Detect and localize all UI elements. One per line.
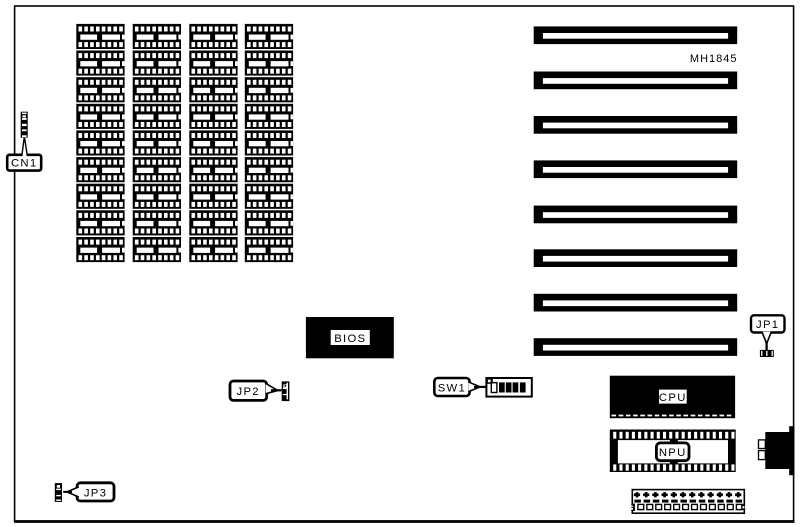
svg-text:JP3: JP3 xyxy=(84,487,107,499)
svg-text:SW1: SW1 xyxy=(438,382,466,394)
svg-text:NPU: NPU xyxy=(659,447,687,459)
svg-text:BIOS: BIOS xyxy=(334,333,366,345)
svg-text:JP1: JP1 xyxy=(756,319,779,331)
svg-text:CPU: CPU xyxy=(659,392,687,404)
svg-text:CN1: CN1 xyxy=(11,158,38,170)
svg-text:JP2: JP2 xyxy=(237,386,260,398)
svg-text:MH1845: MH1845 xyxy=(690,53,738,65)
